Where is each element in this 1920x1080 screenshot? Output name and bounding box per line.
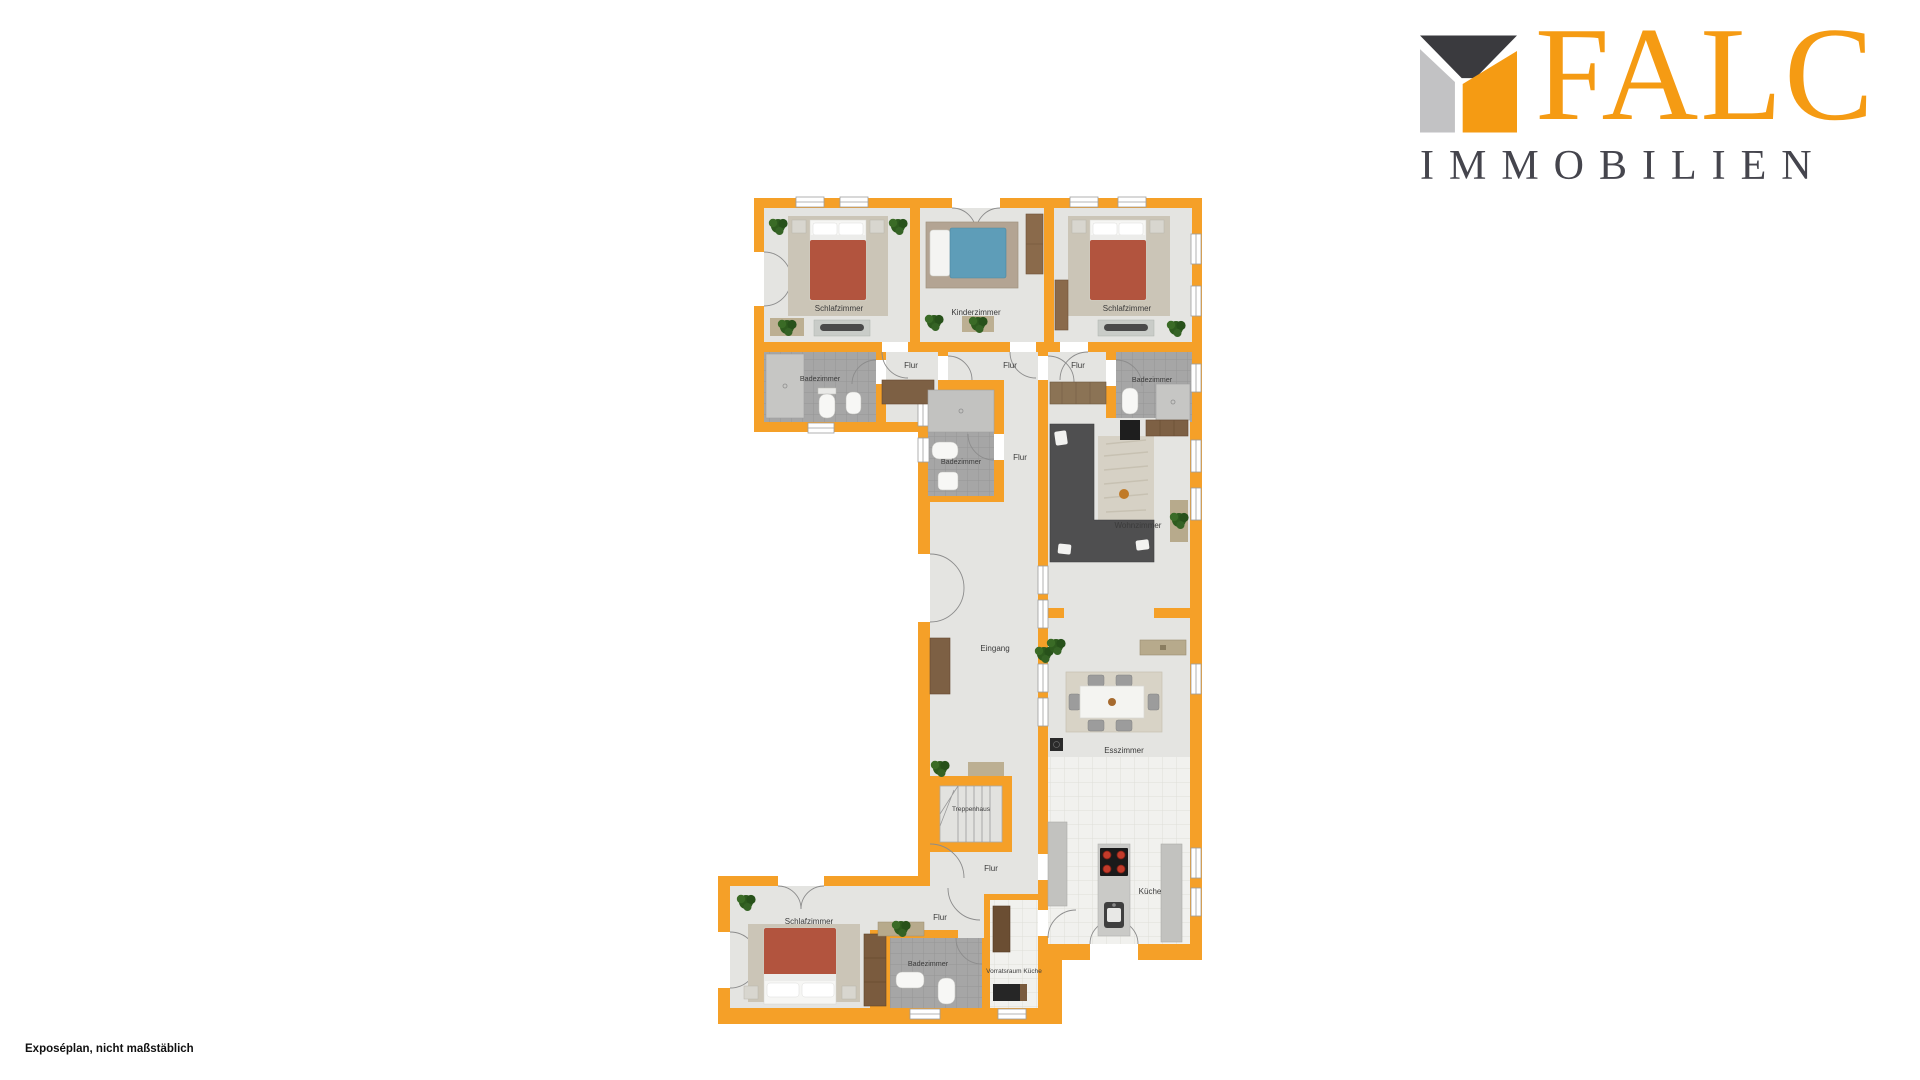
- sink: [1104, 902, 1124, 928]
- dresser: [814, 320, 870, 336]
- room-label-hall-lower: Flur: [984, 864, 998, 873]
- sideboard: [1140, 640, 1186, 655]
- toilet: [818, 388, 836, 418]
- wardrobe: [1055, 280, 1068, 330]
- bowl: [1108, 698, 1116, 706]
- room-label: Wohnzimmer: [1115, 521, 1162, 530]
- room-label: Badezimmer: [1132, 375, 1173, 384]
- toilet: [1122, 388, 1138, 414]
- sideboard: [1050, 382, 1106, 404]
- shower: [928, 390, 994, 432]
- stove-item: [1050, 738, 1063, 751]
- rug: [1098, 436, 1154, 520]
- room-label: Flur: [1071, 361, 1085, 370]
- page: FALC IMMOBILIEN: [0, 0, 1920, 1080]
- room-label: Kinderzimmer: [951, 308, 1001, 317]
- wardrobe: [1026, 214, 1043, 274]
- room-label: Badezimmer: [908, 959, 949, 968]
- room-label: Vorratsraum Küche: [986, 968, 1042, 975]
- shelf-cabinet: [993, 906, 1010, 952]
- toilet: [938, 978, 955, 1004]
- logo-brand-text: FALC: [1535, 24, 1876, 124]
- wall-stub-living-dining-right: [1154, 608, 1202, 618]
- room-label: Küche: [1139, 887, 1162, 896]
- wardrobe: [864, 934, 886, 1006]
- sideboard: [930, 638, 950, 694]
- falc-logo: FALC IMMOBILIEN: [1420, 24, 1906, 190]
- counter-left: [1048, 822, 1067, 906]
- scale-disclaimer: Exposéplan, nicht maßstäblich: [25, 1043, 194, 1055]
- sideboard: [1146, 420, 1188, 436]
- floor-plan-svg: Schlafzimmer Kinderzimmer: [714, 194, 1206, 1038]
- room-label: Schlafzimmer: [785, 917, 834, 926]
- sink: [938, 472, 958, 490]
- staircase-block: [930, 776, 1012, 852]
- falc-logo-icon: [1420, 34, 1517, 134]
- room-label: Flur: [933, 913, 947, 922]
- tv: [1120, 420, 1140, 440]
- sideboard: [882, 380, 934, 404]
- dresser: [1098, 320, 1154, 336]
- room-label-hall-middle: Flur: [1013, 453, 1027, 462]
- room-label: Flur: [904, 361, 918, 370]
- logo-subtitle-text: IMMOBILIEN: [1420, 142, 1906, 190]
- sink: [896, 972, 924, 988]
- floor-plan: Schlafzimmer Kinderzimmer: [714, 194, 1206, 1038]
- shower: [766, 354, 804, 418]
- cooktop: [1100, 848, 1128, 876]
- shower: [1156, 384, 1190, 420]
- room-label-hall-top-center: Flur: [1003, 361, 1017, 370]
- room-label: Badezimmer: [941, 457, 982, 466]
- falc-logo-row: FALC: [1420, 24, 1906, 134]
- mat: [968, 762, 1004, 776]
- room-label: Schlafzimmer: [1103, 304, 1152, 313]
- floor-hall-middle: [1004, 380, 1038, 502]
- room-label: Esszimmer: [1104, 746, 1144, 755]
- room-label: Eingang: [980, 644, 1009, 653]
- room-label: Badezimmer: [800, 374, 841, 383]
- bidet: [846, 392, 861, 414]
- kids-bed: [930, 228, 1006, 278]
- counter-right: [1161, 844, 1182, 942]
- room-label: Treppenhaus: [952, 806, 991, 813]
- freezer: [993, 984, 1027, 1001]
- room-label: Schlafzimmer: [815, 304, 864, 313]
- bowl: [1119, 489, 1129, 499]
